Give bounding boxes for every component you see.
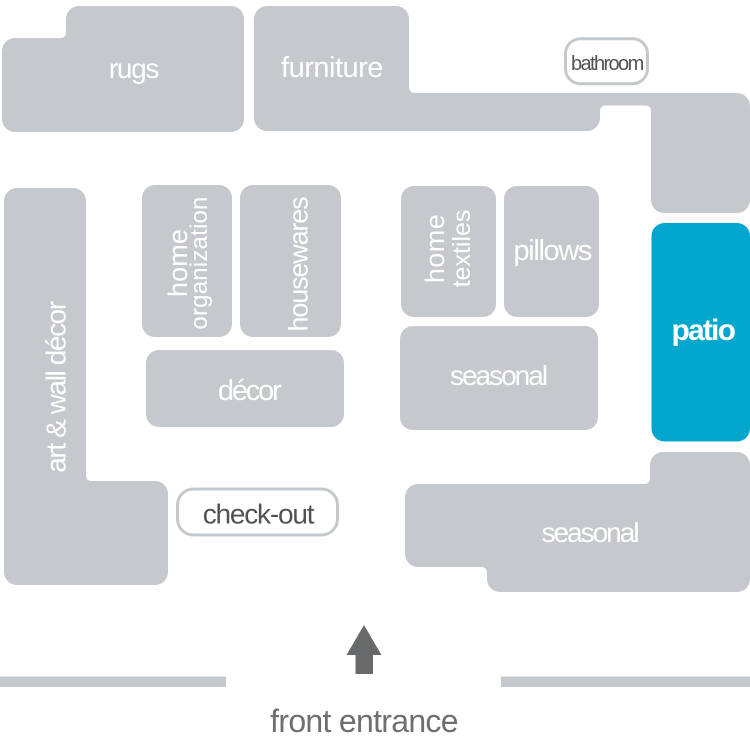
svg-text:bathroom: bathroom — [571, 53, 644, 75]
svg-text:front entrance: front entrance — [270, 703, 458, 739]
svg-text:seasonal: seasonal — [541, 517, 638, 548]
svg-text:check-out: check-out — [203, 499, 315, 530]
svg-text:organization: organization — [186, 196, 213, 329]
svg-text:décor: décor — [218, 375, 282, 407]
svg-text:pillows: pillows — [514, 235, 592, 267]
svg-text:furniture: furniture — [281, 52, 383, 84]
svg-text:art & wall décor: art & wall décor — [41, 301, 72, 473]
svg-text:textiles: textiles — [448, 210, 476, 288]
svg-text:seasonal: seasonal — [450, 360, 547, 391]
svg-text:housewares: housewares — [284, 197, 314, 332]
svg-text:home: home — [420, 214, 450, 283]
svg-text:patio: patio — [671, 314, 735, 347]
svg-text:rugs: rugs — [109, 53, 159, 84]
